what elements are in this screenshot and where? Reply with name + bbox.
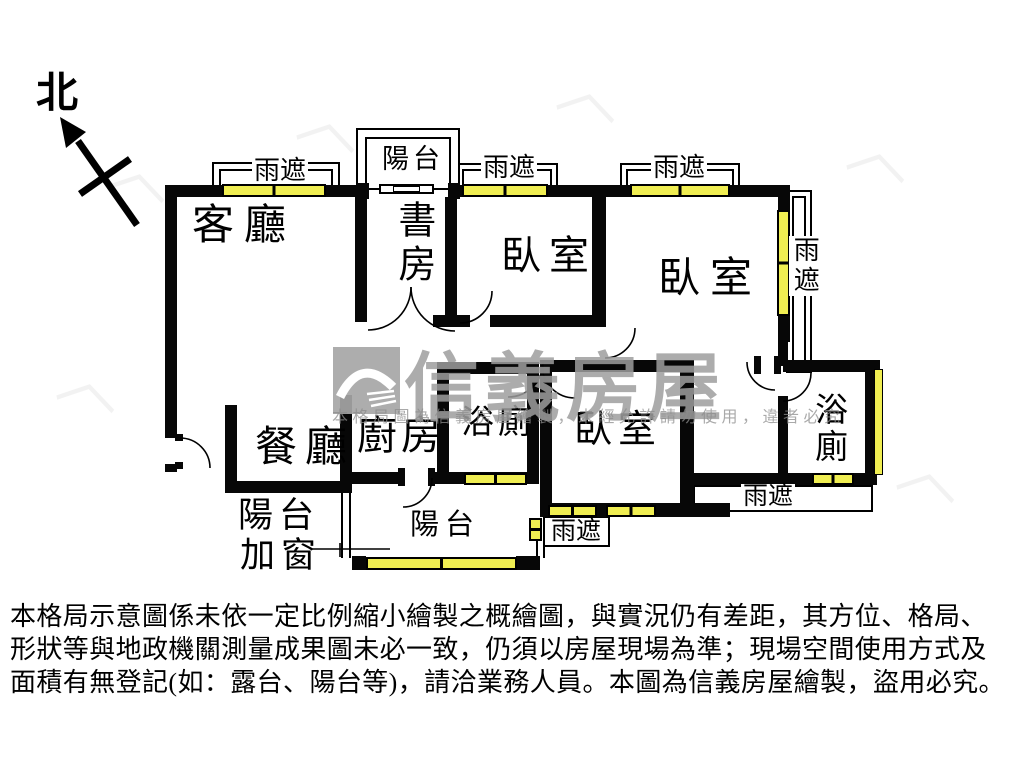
door-jamb (754, 356, 761, 374)
background-pattern-mark: ︿ (840, 94, 924, 199)
door-jamb (398, 468, 405, 486)
wall (165, 185, 177, 438)
room-label-dining-room: 餐廳 (255, 426, 355, 470)
balcony-door-sill (393, 186, 420, 192)
door-jamb (175, 462, 183, 469)
door-arc (368, 287, 411, 330)
wall (355, 197, 367, 322)
balcony-outline-bottom (341, 493, 351, 558)
door-arc (747, 362, 775, 390)
window (630, 184, 730, 197)
rain-cover-label: 雨遮 (741, 484, 795, 510)
wall (490, 315, 605, 327)
door-jamb (428, 468, 435, 486)
room-label-bedroom-2: 臥室 (658, 257, 762, 301)
balcony-window-cap (516, 556, 540, 570)
wall (445, 197, 457, 322)
background-pattern-mark: ︿ (890, 414, 974, 519)
balcony-added-window-label-line1: 陽台 (238, 498, 320, 535)
room-label-living-room: 客廳 (192, 204, 296, 248)
wall (688, 503, 730, 517)
north-label: 北 (36, 72, 78, 116)
rain-cover-label: 雨遮 (252, 157, 308, 184)
door-arc (180, 438, 210, 468)
wall (225, 481, 352, 493)
rain-cover-label: 雨遮 (789, 236, 820, 296)
room-label-bedroom-1: 臥室 (501, 235, 597, 277)
disclaimer-line-3: 面積有無登記(如：露台、陽台等)，請洽業務人員。本圖為信義房屋繪製，盜用必究。 (10, 662, 1005, 699)
window (222, 184, 326, 197)
door-jamb (175, 434, 183, 441)
window (366, 557, 517, 570)
wall (225, 405, 237, 493)
door-jamb (448, 183, 460, 199)
window (462, 184, 548, 197)
wall (340, 472, 405, 484)
rain-cover-label: 雨遮 (481, 154, 537, 181)
window (812, 473, 854, 485)
balcony-label-bottom: 陽台 (410, 510, 480, 540)
background-pattern-mark: ︿ (550, 34, 634, 139)
window (464, 473, 527, 485)
disclaimer-line-1: 本格局示意圖係未依一定比例縮小繪製之概繪圖，與實況仍有差距，其方位、格局、 (10, 596, 987, 633)
room-label-study: 書房 (392, 200, 432, 288)
window (874, 369, 883, 475)
rain-cover-label: 雨遮 (651, 154, 707, 181)
rain-cover-label: 雨遮 (549, 519, 603, 545)
balcony-added-window-label-line2: 加窗 (240, 538, 322, 575)
balcony-window-cap (352, 556, 366, 570)
watermark-notice-text: 本格局圖為信義房屋繪製，未經允許請勿使用，違者必究 (332, 403, 845, 427)
floor-plan-canvas: ︿ ︿ ︿ ︿ ︿ ︿ (0, 0, 1024, 768)
window (606, 505, 656, 517)
door-jamb (774, 356, 781, 374)
window (548, 505, 597, 517)
background-pattern-mark: ︿ (50, 324, 134, 429)
balcony-label-top: 陽台 (382, 145, 444, 173)
leader-line (312, 543, 390, 557)
disclaimer-line-2: 形狀等與地政機關測量成果圖未必一致，仍須以房屋現場為準；現場空間使用方式及 (10, 629, 987, 666)
wall (433, 315, 470, 327)
door-jamb (357, 183, 369, 199)
window (529, 518, 542, 541)
